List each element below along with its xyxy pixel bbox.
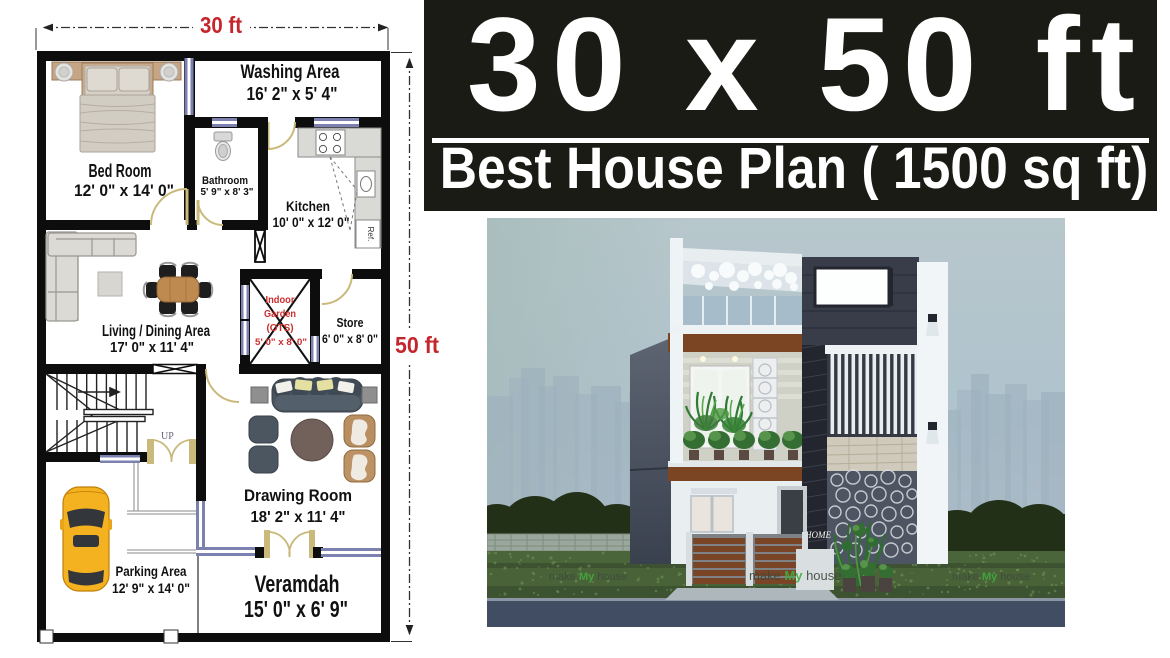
svg-text:make My house: make My house <box>549 571 627 583</box>
svg-text:Veramdah: Veramdah <box>255 571 340 598</box>
svg-text:make My house: make My house <box>749 568 842 583</box>
svg-text:Indoor: Indoor <box>266 295 295 306</box>
svg-text:UP: UP <box>161 431 174 442</box>
svg-text:Parking Area: Parking Area <box>116 563 187 579</box>
svg-text:30 ft: 30 ft <box>200 12 242 38</box>
svg-text:Washing Area: Washing Area <box>241 62 340 83</box>
svg-text:Store: Store <box>337 315 364 330</box>
svg-text:16' 2" x 5' 4": 16' 2" x 5' 4" <box>247 84 338 104</box>
svg-text:Kitchen: Kitchen <box>286 198 330 214</box>
svg-text:15' 0" x 6' 9": 15' 0" x 6' 9" <box>244 596 348 622</box>
svg-text:Living / Dining Area: Living / Dining Area <box>102 323 210 340</box>
svg-text:5' 9" x 8' 3": 5' 9" x 8' 3" <box>201 186 254 198</box>
svg-text:make My house: make My house <box>952 571 1030 583</box>
svg-text:Garden: Garden <box>264 309 296 320</box>
svg-text:(OTS): (OTS) <box>267 323 294 334</box>
svg-text:Bed Room: Bed Room <box>89 161 152 181</box>
svg-text:6' 0" x 8' 0": 6' 0" x 8' 0" <box>322 332 378 346</box>
svg-text:17' 0" x 11' 4": 17' 0" x 11' 4" <box>110 339 194 356</box>
svg-text:10' 0" x 12' 0": 10' 0" x 12' 0" <box>273 215 350 230</box>
svg-text:5' 0" x 8' 0": 5' 0" x 8' 0" <box>255 337 307 348</box>
svg-text:12' 9" x 14' 0": 12' 9" x 14' 0" <box>112 581 190 596</box>
svg-text:12' 0" x 14' 0": 12' 0" x 14' 0" <box>74 181 174 200</box>
svg-text:50 ft: 50 ft <box>395 332 439 358</box>
svg-text:Drawing Room: Drawing Room <box>244 486 352 505</box>
svg-text:Ref.: Ref. <box>366 227 375 242</box>
svg-text:18' 2" x 11' 4": 18' 2" x 11' 4" <box>251 509 346 526</box>
svg-text:HOME: HOME <box>804 530 831 540</box>
